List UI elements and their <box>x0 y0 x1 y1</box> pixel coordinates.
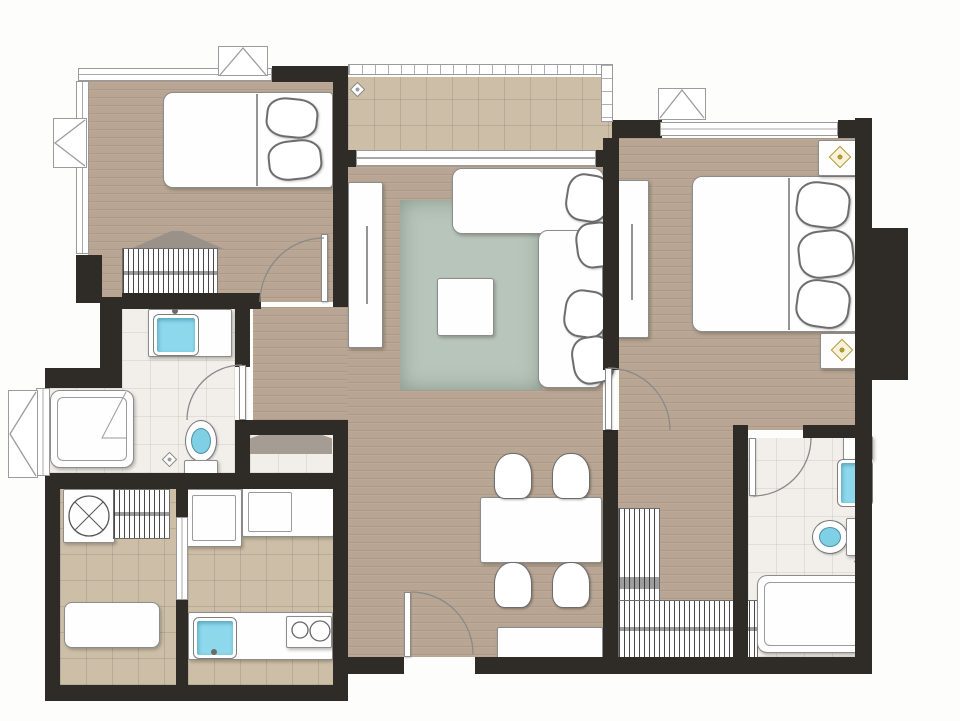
wall <box>76 255 102 303</box>
sink-bath1 <box>154 315 198 355</box>
wall <box>45 473 60 687</box>
wall <box>333 66 348 307</box>
master-cabinet <box>617 180 649 338</box>
dining-chair <box>552 562 590 608</box>
ac-unit-bathroom <box>8 390 38 478</box>
ac-unit-master <box>658 88 706 120</box>
tv-cabinet-handle <box>366 226 368 304</box>
wall <box>238 420 348 435</box>
wall <box>612 120 662 138</box>
balcony-railing-right <box>601 64 613 122</box>
wall <box>733 425 748 657</box>
sliding-door-balcony <box>356 150 596 166</box>
faucet-dot <box>211 649 217 655</box>
wall <box>475 657 872 674</box>
toilet-bath1-seat <box>191 428 211 454</box>
coffee-table <box>437 278 494 336</box>
ac-unit-bedroom2-top <box>218 46 268 76</box>
double-bed-fold-line <box>788 178 790 330</box>
wall <box>235 303 250 367</box>
dining-chair <box>494 453 532 499</box>
single-bed-fold-line <box>256 94 258 186</box>
exterior-column <box>862 228 908 380</box>
dining-table <box>480 497 602 563</box>
wall <box>603 138 619 370</box>
ac-unit-bedroom2-left <box>53 118 87 168</box>
wall <box>45 685 348 701</box>
wall <box>176 489 188 517</box>
door-leaf-master-bedroom <box>605 368 612 430</box>
dining-chair <box>552 453 590 499</box>
shower-tray-inner <box>764 582 860 646</box>
wall <box>803 425 872 438</box>
wall <box>603 430 618 657</box>
wall <box>596 150 605 167</box>
wall <box>333 657 404 674</box>
door-leaf-bathroom1 <box>239 365 246 420</box>
washing-machine <box>63 489 115 543</box>
floor-plan <box>0 0 960 721</box>
door-leaf-entrance <box>404 592 411 657</box>
glass-partition-laundry <box>176 517 188 600</box>
kitchen-cabinet <box>248 492 292 532</box>
wardrobe2 <box>122 248 218 298</box>
wall <box>348 150 356 167</box>
wall <box>45 368 122 388</box>
sideboard <box>497 627 603 659</box>
fridge-inner <box>192 495 236 541</box>
corridor-floor <box>253 307 348 423</box>
drying-rack <box>113 489 170 539</box>
bathtub-inner <box>57 397 127 461</box>
laundry-bench <box>64 602 160 648</box>
wall <box>45 473 348 489</box>
dining-chair <box>494 562 532 608</box>
wall <box>855 118 872 674</box>
stove <box>286 616 332 648</box>
master-cabinet-handle <box>631 224 633 300</box>
door-leaf-master-bath <box>749 438 756 496</box>
pillow <box>264 95 320 140</box>
window-bathtub <box>36 388 50 476</box>
balcony-railing-top <box>348 64 612 75</box>
door-leaf-bedroom2 <box>321 234 328 302</box>
balcony-floor <box>348 77 612 152</box>
toilet-mbath-seat <box>819 527 841 547</box>
wall <box>176 600 188 685</box>
window-master-top <box>660 122 838 136</box>
